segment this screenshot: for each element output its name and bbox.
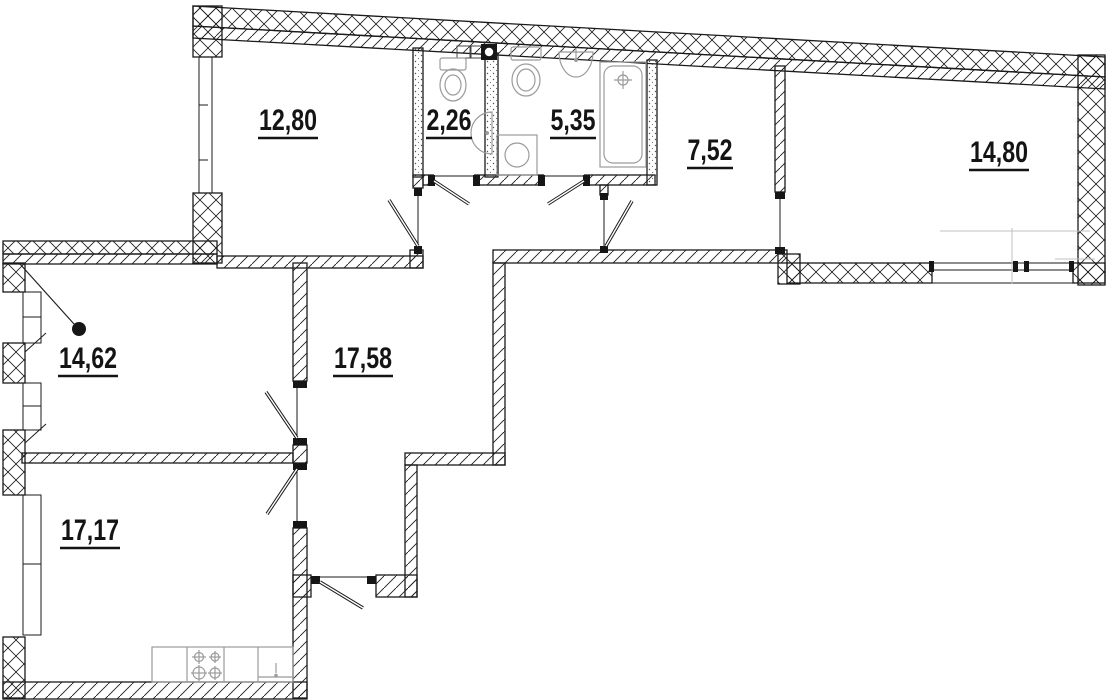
room-area-hallway-vestibule (423, 185, 600, 250)
wall-wc-left (413, 48, 423, 177)
bottom-right-corner (1073, 263, 1105, 283)
rooms (22, 40, 1073, 678)
room-area-kitchen-17-17 (22, 463, 293, 678)
entrance-wall-right (376, 575, 417, 597)
door-swing-icon-entrance (320, 582, 363, 608)
wall-hall-room-14-62 (293, 263, 307, 381)
room-area-12-80 (222, 40, 413, 256)
wall-wc-left-foot (413, 175, 423, 188)
floor-plan-svg: 12,80 2,26 5,35 7,52 14,80 14,62 17,58 1… (0, 0, 1112, 700)
wall-kitchen-right (293, 528, 307, 698)
bottom-wall-room-14-80 (787, 263, 932, 283)
right-wall (1078, 55, 1105, 285)
room-label-2-26: 2,26 (427, 104, 472, 137)
room-label-14-62: 14,62 (59, 342, 117, 375)
wall-room-14-62-kitchen-divider (22, 453, 293, 463)
wall-left-of-room-12-80-upper (193, 6, 222, 57)
room-area-hallway-17-58 (307, 263, 493, 575)
left-wing-top-wall-outer (3, 241, 217, 254)
left-wall-pier-1 (3, 263, 25, 292)
wall-hall-divider-junction (293, 445, 307, 463)
room-label-7-52: 7,52 (688, 134, 733, 167)
room-label-17-58: 17,58 (334, 342, 392, 375)
room-label-5-35: 5,35 (551, 104, 596, 137)
room-label-12-80: 12,80 (259, 104, 317, 137)
wall-corridor-room-14-80 (775, 66, 785, 192)
room-label-17-17: 17,17 (61, 514, 119, 547)
bottom-wall-kitchen (3, 682, 307, 699)
left-wall-pier-2 (3, 343, 25, 383)
window-icon-room-12-80 (195, 57, 216, 193)
wall-below-vestibule (493, 250, 787, 263)
floor-plan-page: 12,80 2,26 5,35 7,52 14,80 14,62 17,58 1… (0, 0, 1112, 700)
room-area-14-80 (785, 89, 1073, 263)
hallway-step-wall-upper (493, 263, 505, 465)
left-wing-top-wall-inner (3, 254, 217, 264)
room-label-14-80: 14,80 (970, 136, 1028, 169)
